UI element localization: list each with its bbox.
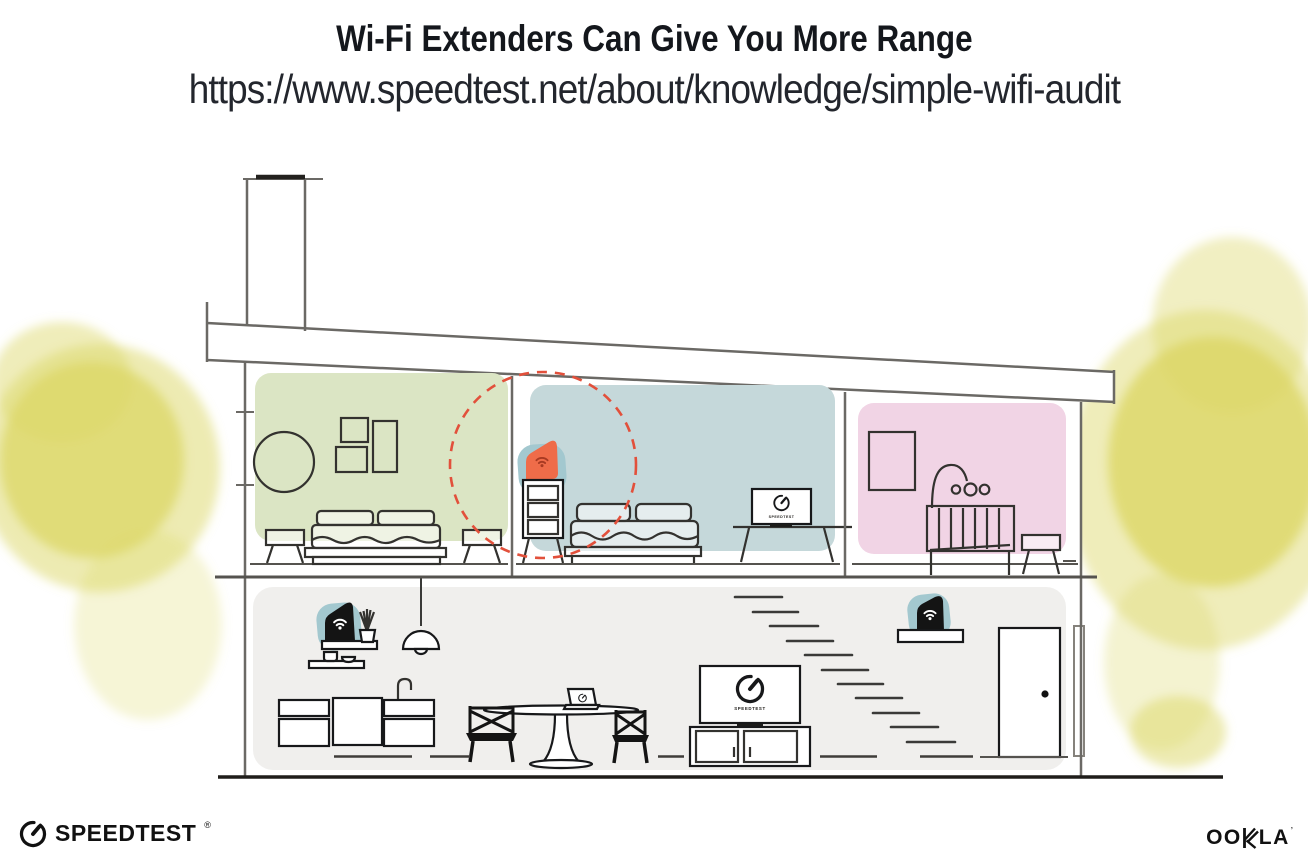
cup bbox=[324, 652, 337, 661]
speedtest-wordmark: SPEEDTEST bbox=[55, 820, 196, 847]
wall-pillar bbox=[1074, 626, 1084, 756]
ookla-k-glyph bbox=[1242, 827, 1259, 849]
house-cutaway-illustration: SPEEDTEST bbox=[0, 0, 1308, 861]
media-console bbox=[690, 727, 810, 766]
laptop bbox=[564, 689, 599, 709]
bedroom-tv-label: SPEEDTEST bbox=[769, 515, 795, 519]
registered-mark: ® bbox=[204, 820, 211, 830]
speedtest-logo: SPEEDTEST® bbox=[18, 818, 210, 848]
speedtest-gauge-icon bbox=[18, 818, 48, 848]
living-tv bbox=[700, 666, 800, 723]
ookla-logo: OO LA ’ bbox=[1206, 826, 1292, 850]
ookla-wordmark-la: LA bbox=[1259, 826, 1290, 850]
bowl bbox=[342, 657, 355, 662]
ookla-trademark-tick: ’ bbox=[1291, 826, 1293, 837]
infographic-page: Wi-Fi Extenders Can Give You More Range … bbox=[0, 0, 1308, 861]
living-tv-label: SPEEDTEST bbox=[734, 706, 766, 711]
foliage-left bbox=[0, 322, 222, 720]
living-tv-unit: SPEEDTEST bbox=[690, 666, 810, 766]
ookla-wordmark-oo: OO bbox=[1206, 826, 1242, 850]
door-knob bbox=[1041, 690, 1048, 697]
foliage-right bbox=[1067, 237, 1308, 768]
